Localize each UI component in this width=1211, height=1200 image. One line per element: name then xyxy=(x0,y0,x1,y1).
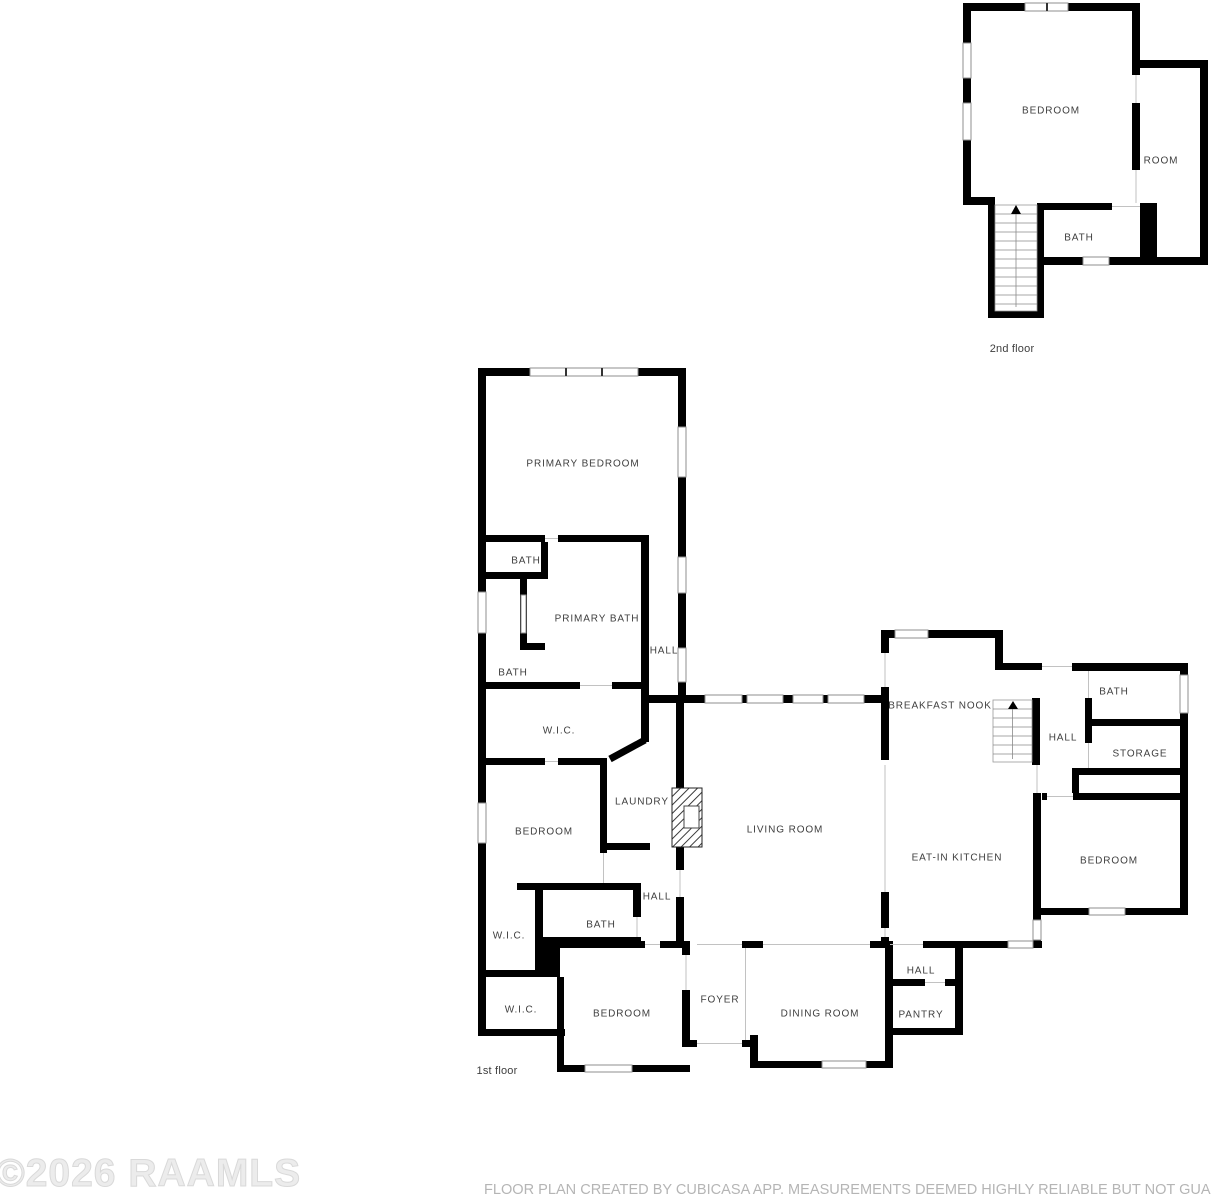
room-label-hall: HALL xyxy=(643,892,672,903)
room-label-pantry: PANTRY xyxy=(898,1010,943,1021)
room-label-hall: HALL xyxy=(650,646,679,657)
room-label-bath: BATH xyxy=(1064,233,1094,244)
room-label-bath: BATH xyxy=(1099,687,1129,698)
fireplace xyxy=(672,788,702,847)
first-floor-walls xyxy=(478,368,1188,1072)
room-label-bath: BATH xyxy=(498,668,528,679)
room-label-bedroom: BEDROOM xyxy=(515,827,573,838)
room-label-bedroom: BEDROOM xyxy=(593,1009,651,1020)
room-label-hall: HALL xyxy=(907,966,936,977)
room-label-w-i-c-: W.I.C. xyxy=(493,931,526,942)
second-floor-staircase xyxy=(995,205,1037,311)
diagonal-wall xyxy=(610,740,645,759)
room-label-foyer: FOYER xyxy=(701,995,740,1006)
room-label-w-i-c-: W.I.C. xyxy=(505,1005,538,1016)
room-label-eat-in-kitchen: EAT-IN KITCHEN xyxy=(912,853,1003,864)
watermark: ©2026 RAAMLS xyxy=(0,1152,301,1196)
room-label-hall: HALL xyxy=(1049,733,1078,744)
room-label-room: ROOM xyxy=(1144,156,1179,167)
room-label-primary-bath: PRIMARY BATH xyxy=(555,614,640,625)
room-label-bath: BATH xyxy=(511,556,541,567)
room-label-w-i-c-: W.I.C. xyxy=(543,726,576,737)
room-label-dining-room: DINING ROOM xyxy=(781,1009,860,1020)
room-label-bedroom: BEDROOM xyxy=(1080,856,1138,867)
room-label-living-room: LIVING ROOM xyxy=(747,825,824,836)
room-label-bath: BATH xyxy=(586,920,616,931)
room-label-storage: STORAGE xyxy=(1112,749,1167,760)
first-floor-staircase xyxy=(993,700,1032,762)
room-label-laundry: LAUNDRY xyxy=(615,797,669,808)
room-label-primary-bedroom: PRIMARY BEDROOM xyxy=(526,459,639,470)
floor-plan-drawing xyxy=(0,0,1211,1200)
floor-label: 2nd floor xyxy=(990,343,1035,355)
room-label-bedroom: BEDROOM xyxy=(1022,106,1080,117)
disclaimer: FLOOR PLAN CREATED BY CUBICASA APP. MEAS… xyxy=(484,1181,1189,1198)
floor-label: 1st floor xyxy=(477,1065,518,1077)
floor-plan-page: ©2026 RAAMLS FLOOR PLAN CREATED BY CUBIC… xyxy=(0,0,1211,1200)
room-label-breakfast-nook: BREAKFAST NOOK xyxy=(888,701,992,712)
first-floor-windows xyxy=(478,368,1188,1072)
